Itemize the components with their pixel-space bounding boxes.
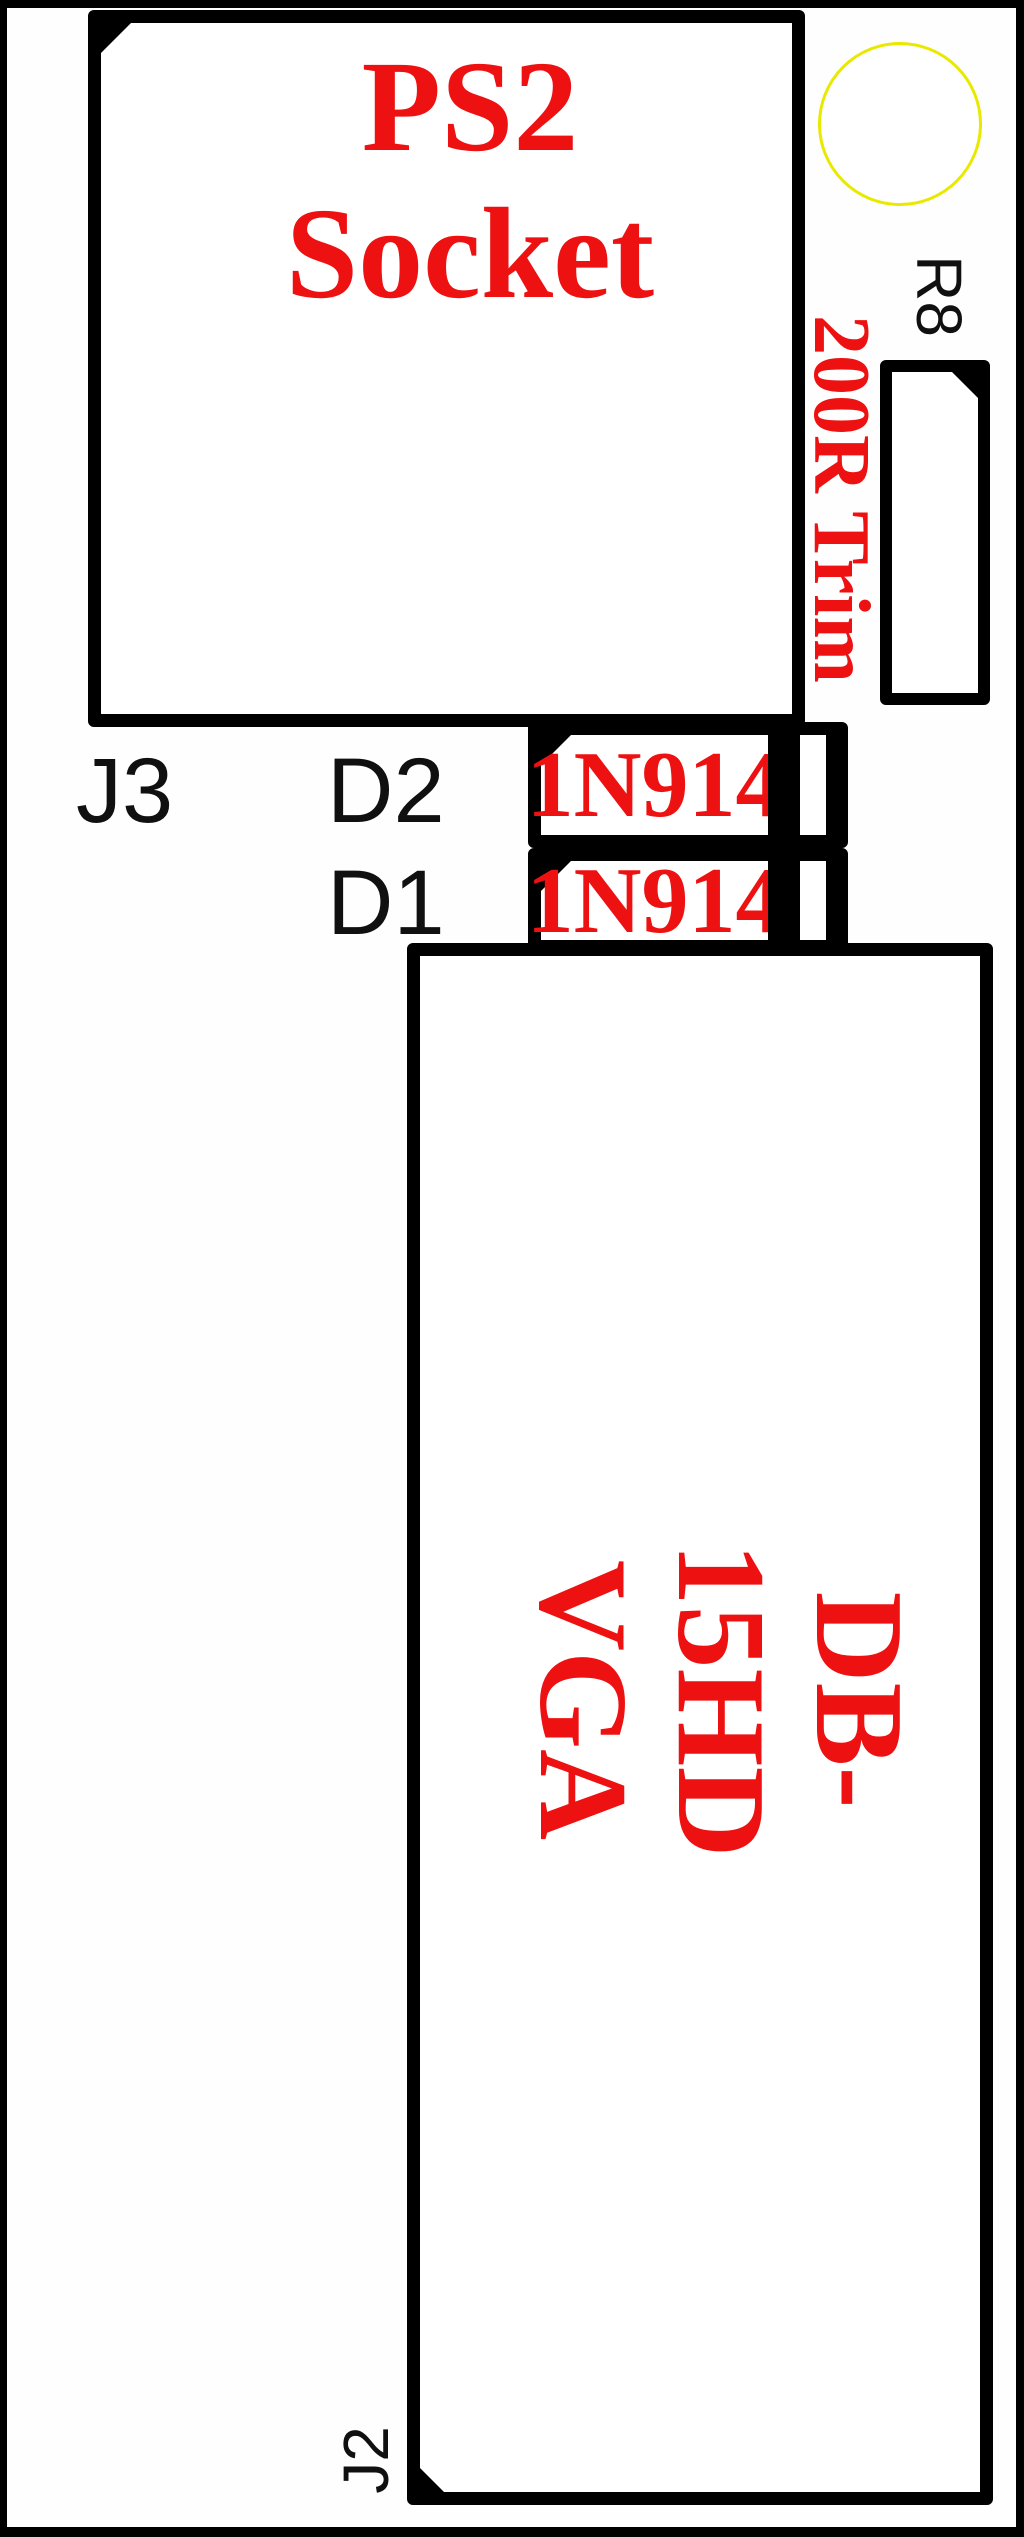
ps2-pin1-chamfer [99, 21, 133, 55]
page-border-bottom [0, 2527, 1024, 2537]
diode-d2-outline: 1N914 [528, 722, 848, 848]
j3-ref-label: J3 [76, 745, 173, 837]
page-border-right [1016, 0, 1024, 2537]
vga-type-label: DB-15HD VGA [651, 1440, 927, 1960]
diode-d2-cathode-band [768, 735, 800, 835]
ps2-socket-label: PS2 Socket [130, 34, 810, 328]
trimmer-r8-outline [880, 360, 990, 705]
d1-ref-label: D1 [327, 857, 445, 949]
ps2-socket-label-line2: Socket [130, 181, 810, 328]
vga-type-label-line1: DB-15HD [651, 1440, 927, 1960]
diode-d2-part-label: 1N914 [541, 735, 768, 835]
page-border-top [0, 0, 1024, 8]
r8-pin1-chamfer [950, 370, 980, 400]
pcb-placement-diagram: PS2 Socket R8 200R Trim J3 D2 D1 1N914 1… [0, 0, 1024, 2537]
r8-value-label: 200R Trim [801, 309, 881, 689]
diode-d1-part-label: 1N914 [541, 861, 768, 940]
r8-ref-label: R8 [903, 241, 975, 351]
diode-d1-cathode-band [768, 861, 800, 940]
j2-ref-label: J2 [330, 2412, 402, 2508]
diode-d1-outline: 1N914 [528, 848, 848, 953]
vga-pin1-chamfer [418, 2466, 446, 2494]
ps2-socket-label-line1: PS2 [130, 34, 810, 181]
page-border-left [0, 0, 7, 2537]
mounting-hole [818, 42, 982, 206]
vga-type-label-line2: VGA [513, 1440, 651, 1960]
d2-ref-label: D2 [327, 745, 445, 837]
